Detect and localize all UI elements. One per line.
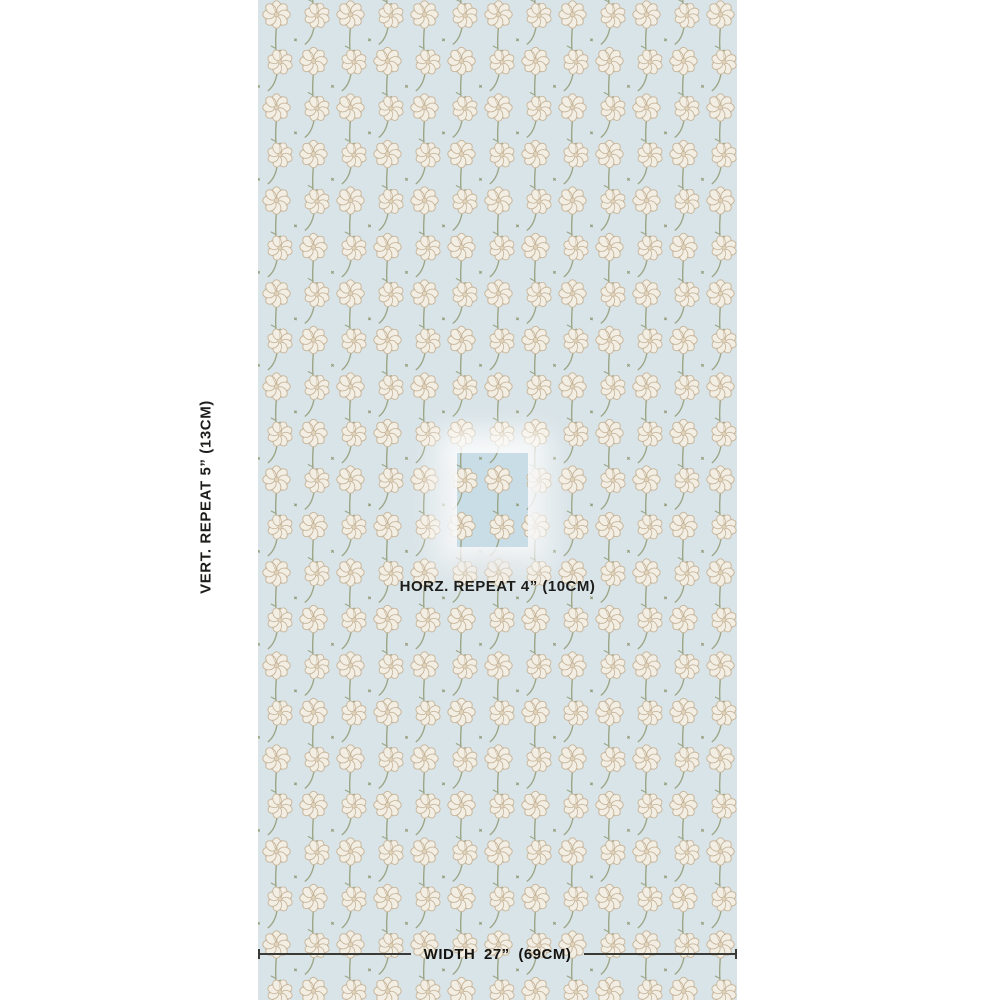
width-label: WIDTH 27” (69CM) — [411, 946, 585, 963]
measure-line-right — [584, 953, 735, 955]
measure-right-tick — [735, 949, 737, 959]
measure-line-left — [260, 953, 411, 955]
repeat-highlight-box — [457, 453, 528, 547]
fabric-swatch: HORZ. REPEAT 4” (10CM) WIDTH 27” (69CM) — [258, 0, 737, 1000]
horizontal-repeat-label: HORZ. REPEAT 4” (10CM) — [258, 578, 737, 595]
vertical-repeat-label: VERT. REPEAT 5” (13CM) — [198, 400, 215, 594]
width-measurement: WIDTH 27” (69CM) — [258, 945, 737, 963]
product-image: VERT. REPEAT 5” (13CM) HORZ. REPEAT 4” (… — [0, 0, 1000, 1000]
